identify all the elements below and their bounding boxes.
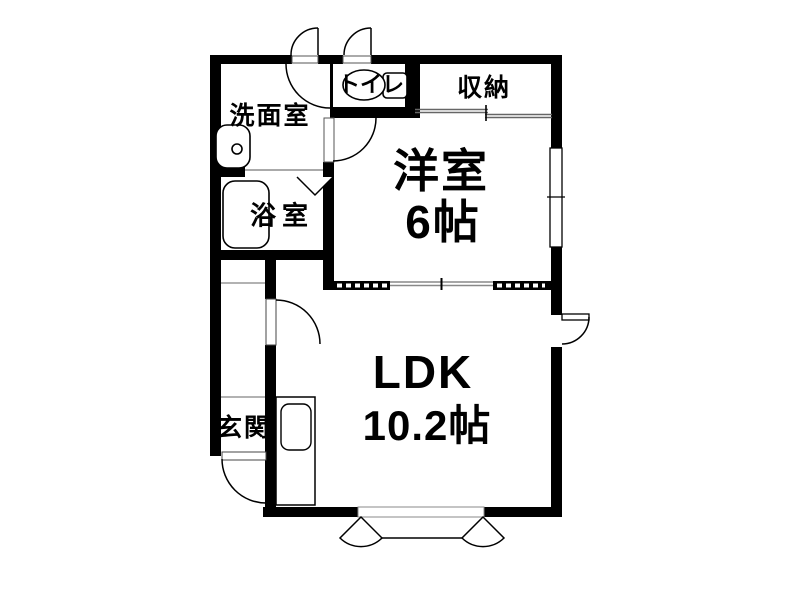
washroom-exterior-door-sill <box>292 56 318 63</box>
ldk-door-arc <box>276 300 320 344</box>
sink-drain-icon <box>232 144 242 154</box>
wall-right-lower <box>551 347 562 517</box>
ldk-right-door-leaf <box>562 314 589 320</box>
storage-label: 収納 <box>457 68 511 104</box>
wall-top-right <box>371 55 562 64</box>
floor-plan: 洗面室 トイレ 収納 洋室 6帖 浴室 玄関 LDK 10.2帖 <box>0 0 800 600</box>
ldk-door-leaf <box>266 299 276 345</box>
western-room-window <box>547 148 565 247</box>
kitchen-sink-icon <box>281 404 311 450</box>
western-room-label: 洋室 <box>393 148 489 194</box>
toilet-exterior-door-sill <box>343 56 371 63</box>
ldk-label: LDK <box>373 349 474 395</box>
entrance-step-lines <box>221 283 265 397</box>
casement-fan-left <box>340 517 382 547</box>
storage-sliding-door <box>415 105 552 121</box>
ldk-size: 10.2帖 <box>363 405 492 447</box>
bottom-casement-windows <box>340 517 504 547</box>
wall-bath-bottom <box>210 250 333 260</box>
wall-toilet-bottom <box>331 107 420 118</box>
entrance-label: 玄関 <box>217 408 271 444</box>
entrance-door-arc <box>222 459 266 503</box>
wall-bottom-left <box>263 507 358 517</box>
wall-top-mid <box>318 55 343 64</box>
wall-right-upper <box>551 55 562 148</box>
western-room-door-arc <box>333 118 376 161</box>
ldk-bottom-opening-sill <box>358 507 484 517</box>
wall-hall-right-upper <box>265 260 276 299</box>
wall-top-left <box>210 55 292 64</box>
room-ldk-sliding-opening <box>390 278 493 290</box>
entrance-door-leaf <box>222 452 266 460</box>
toilet-label: トイレ <box>338 67 404 99</box>
wall-washroom-right-thin <box>330 64 333 118</box>
washroom-label: 洗面室 <box>229 96 310 132</box>
casement-fan-right <box>462 517 504 547</box>
toilet-exterior-door-arc <box>344 28 371 55</box>
bathroom-label: 浴室 <box>250 196 314 233</box>
washroom-exterior-door-arc <box>291 28 318 55</box>
ldk-right-door-arc <box>562 317 589 344</box>
wall-bottom-right <box>484 507 562 517</box>
western-room-door-jamb <box>324 118 334 162</box>
ldk-right-door-opening <box>551 315 562 347</box>
bath-door-opening <box>245 167 323 177</box>
western-room-size: 6帖 <box>405 199 481 245</box>
